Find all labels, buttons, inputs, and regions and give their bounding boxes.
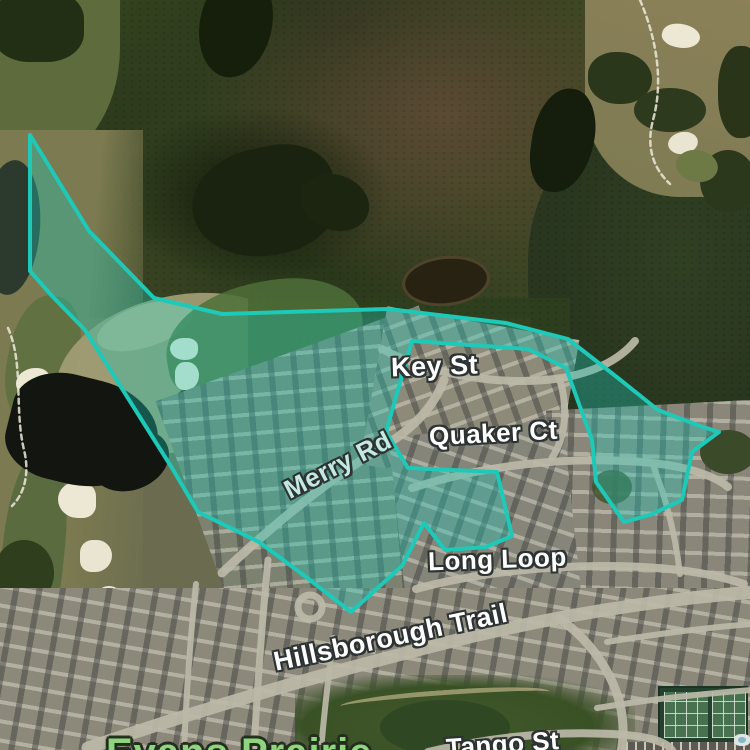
street-label-key-st: Key St [391,350,479,381]
highlight-polygon[interactable] [30,135,719,612]
street-label-quaker-ct: Quaker Ct [428,417,558,451]
map-canvas[interactable]: Key St Quaker Ct Merry Rd Long Loop Hill… [0,0,750,750]
community-label-evans-prairie: Evans Prairie [106,732,373,750]
street-label-long-loop: Long Loop [428,544,568,576]
